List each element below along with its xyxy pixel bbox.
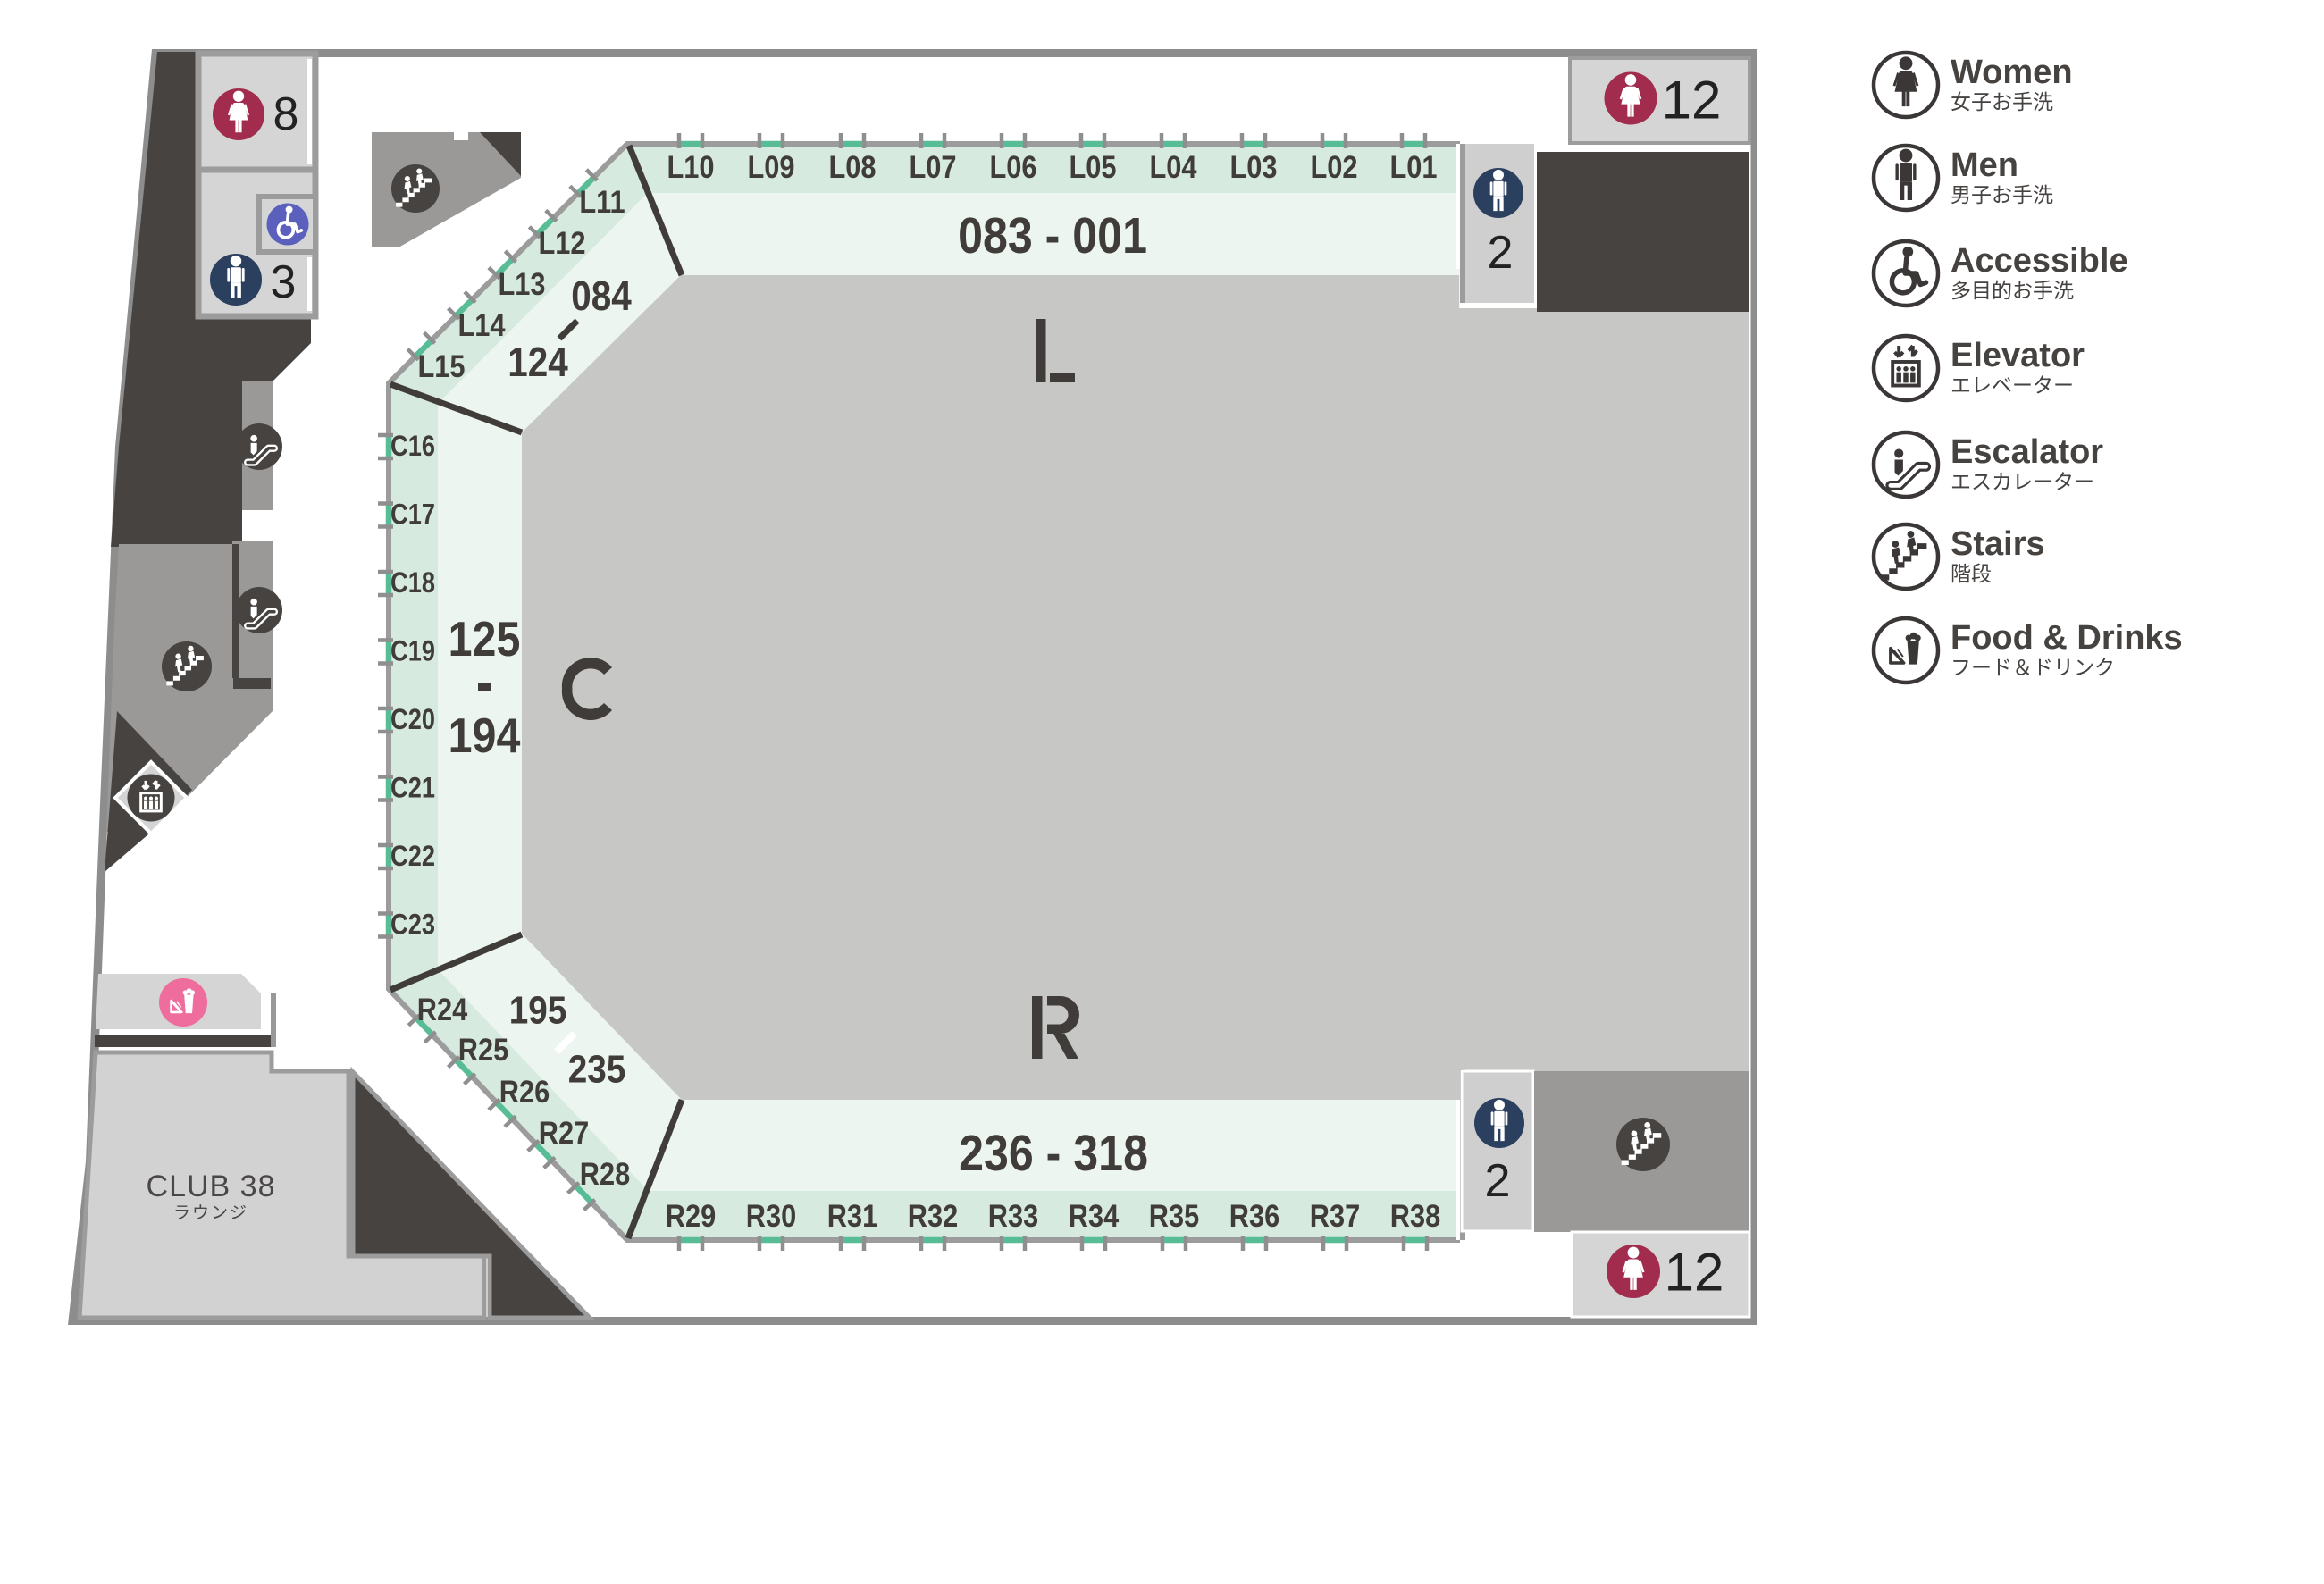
svg-text:2: 2 [1485,1155,1511,1207]
svg-text:C21: C21 [390,773,435,805]
svg-text:エスカレーター: エスカレーター [1951,470,2094,493]
svg-text:R28: R28 [580,1156,630,1191]
svg-text:R38: R38 [1390,1198,1440,1233]
svg-text:L09: L09 [747,149,794,184]
svg-text:R25: R25 [458,1032,508,1067]
svg-text:125: 125 [449,611,521,666]
svg-text:194: 194 [449,708,521,763]
svg-text:L11: L11 [579,184,625,219]
svg-text:R36: R36 [1229,1198,1279,1233]
svg-text:男子お手洗: 男子お手洗 [1951,183,2053,206]
svg-text:C16: C16 [390,431,435,463]
svg-text:R32: R32 [908,1198,958,1233]
svg-text:L12: L12 [538,225,585,260]
svg-text:C18: C18 [390,567,435,599]
svg-text:Accessible: Accessible [1951,242,2128,280]
svg-text:Women: Women [1951,54,2073,91]
svg-text:084: 084 [571,274,632,320]
svg-text:236 - 318: 236 - 318 [959,1125,1148,1182]
svg-text:L05: L05 [1069,149,1116,184]
svg-text:124: 124 [508,340,568,386]
svg-text:3: 3 [271,256,297,308]
svg-text:多目的お手洗: 多目的お手洗 [1951,279,2074,302]
svg-text:C23: C23 [390,909,435,942]
svg-text:L14: L14 [457,307,506,342]
svg-text:L13: L13 [498,266,545,301]
svg-text:R34: R34 [1069,1198,1120,1233]
svg-text:C19: C19 [390,636,435,668]
svg-text:L10: L10 [667,149,714,184]
svg-text:195: 195 [509,987,567,1032]
svg-text:女子お手洗: 女子お手洗 [1951,90,2053,113]
svg-text:L07: L07 [909,149,956,184]
svg-text:R31: R31 [827,1198,877,1233]
svg-text:R37: R37 [1310,1198,1360,1233]
svg-text:12: 12 [1662,71,1722,130]
svg-text:L06: L06 [989,149,1036,184]
svg-text:C17: C17 [390,499,435,532]
svg-text:L02: L02 [1310,149,1357,184]
svg-text:Stairs: Stairs [1951,525,2045,563]
svg-text:Food & Drinks: Food & Drinks [1951,619,2183,657]
svg-text:ラウンジ: ラウンジ [173,1204,248,1223]
svg-text:R26: R26 [499,1074,550,1109]
svg-text:エレベーター: エレベーター [1951,373,2074,397]
svg-text:C20: C20 [390,704,435,736]
svg-text:R29: R29 [666,1198,716,1233]
svg-text:R27: R27 [539,1115,589,1150]
svg-text:8: 8 [273,88,299,140]
svg-text:Men: Men [1951,147,2018,184]
svg-text:Elevator: Elevator [1951,337,2085,374]
svg-text:C22: C22 [390,841,435,873]
svg-text:2: 2 [1488,227,1514,279]
svg-text:階段: 階段 [1951,562,1992,585]
svg-text:R33: R33 [988,1198,1038,1233]
svg-text:083 - 001: 083 - 001 [958,207,1147,264]
svg-text:L04: L04 [1149,149,1197,184]
svg-text:L15: L15 [417,348,465,383]
svg-text:R24: R24 [417,992,468,1027]
svg-text:フード＆ドリンク: フード＆ドリンク [1951,656,2115,679]
svg-text:R35: R35 [1149,1198,1199,1233]
svg-text:L08: L08 [828,149,876,184]
svg-text:235: 235 [568,1046,626,1091]
svg-text:R30: R30 [746,1198,796,1233]
svg-text:L03: L03 [1229,149,1277,184]
svg-text:12: 12 [1665,1243,1724,1303]
svg-text:L01: L01 [1389,149,1437,184]
svg-text:Escalator: Escalator [1951,433,2103,471]
svg-text:CLUB 38: CLUB 38 [147,1169,276,1203]
